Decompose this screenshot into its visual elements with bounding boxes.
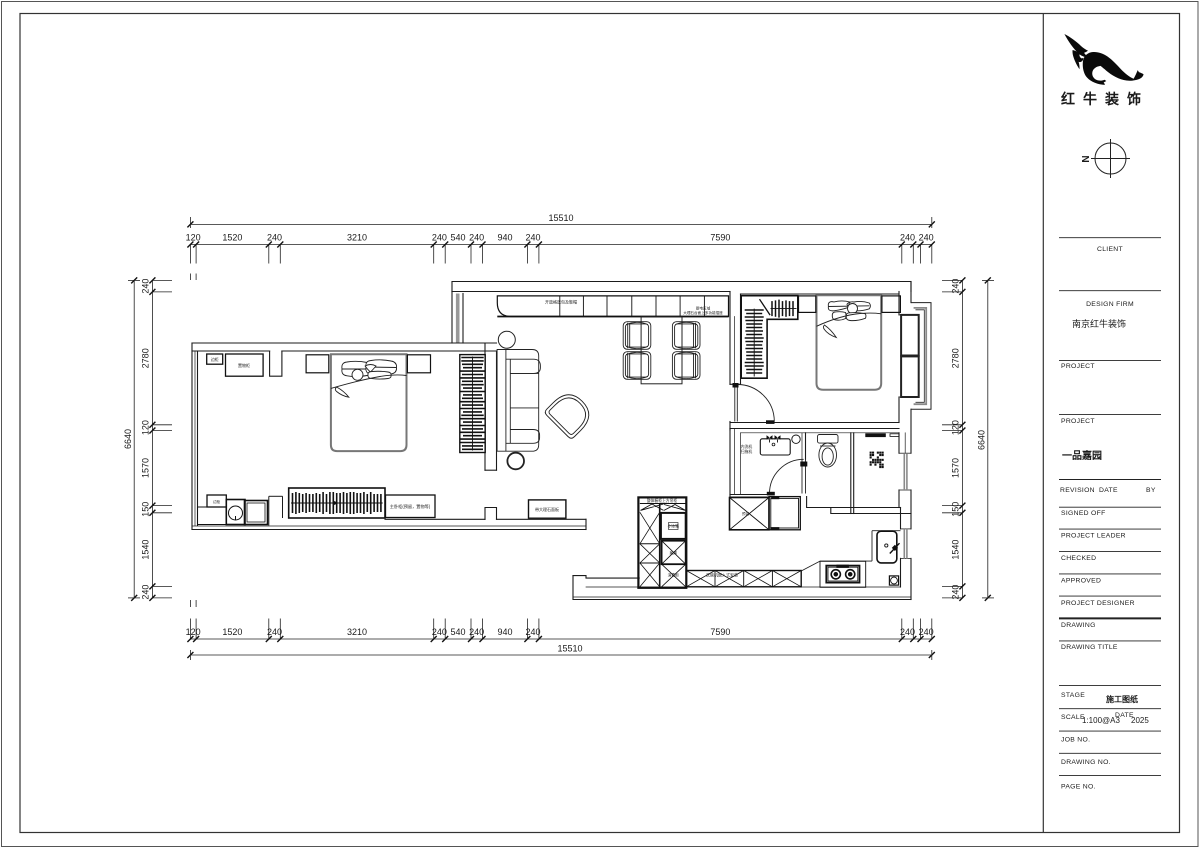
svg-text:边柜: 边柜 [211,356,219,362]
svg-text:240: 240 [900,627,915,637]
svg-text:1570: 1570 [950,458,960,478]
svg-text:2025: 2025 [1131,716,1149,725]
svg-text:一品嘉园: 一品嘉园 [1062,449,1102,462]
svg-text:240: 240 [267,233,282,243]
svg-text:边柜: 边柜 [213,499,220,504]
svg-text:540: 540 [450,627,465,637]
svg-text:120: 120 [950,420,960,435]
svg-text:15510: 15510 [548,213,573,223]
svg-text:预留: 预留 [742,511,750,516]
svg-text:240: 240 [140,279,150,294]
svg-text:120: 120 [140,420,150,435]
svg-text:蒸烤: 蒸烤 [670,551,678,556]
svg-text:整体橱柜上方吊柜: 整体橱柜上方吊柜 [647,498,678,503]
svg-text:大理石台面上多功能插座: 大理石台面上多功能插座 [683,310,723,315]
svg-text:带大理石面板: 带大理石面板 [535,506,559,512]
svg-text:150: 150 [950,502,960,517]
svg-text:N: N [1081,155,1092,162]
svg-text:240: 240 [267,627,282,637]
svg-text:240: 240 [469,233,484,243]
svg-text:240: 240 [525,627,540,637]
svg-text:1540: 1540 [950,540,960,560]
svg-text:240: 240 [432,627,447,637]
svg-text:SIGNED OFF: SIGNED OFF [1061,510,1106,517]
svg-text:DESIGN FIRM: DESIGN FIRM [1086,301,1134,308]
svg-text:3210: 3210 [347,233,367,243]
svg-text:240: 240 [919,233,934,243]
svg-text:洗碗机嵌入式安装: 洗碗机嵌入式安装 [706,572,738,578]
svg-text:120: 120 [186,233,201,243]
svg-text:150: 150 [140,502,150,517]
svg-text:7590: 7590 [710,233,730,243]
svg-text:南京红牛装饰: 南京红牛装饰 [1072,318,1126,329]
svg-text:7590: 7590 [710,627,730,637]
svg-text:3210: 3210 [347,627,367,637]
svg-text:240: 240 [525,233,540,243]
svg-text:120: 120 [186,627,201,637]
svg-text:厨电区域: 厨电区域 [696,306,711,311]
svg-text:施工图纸: 施工图纸 [1106,694,1138,704]
svg-text:DRAWING: DRAWING [1061,622,1096,629]
svg-text:2780: 2780 [140,348,150,368]
svg-text:2780: 2780 [950,348,960,368]
svg-text:940: 940 [497,627,512,637]
svg-text:DATE: DATE [1099,487,1118,494]
svg-text:主卧柜(预留，置物等): 主卧柜(预留，置物等) [390,503,431,510]
svg-text:240: 240 [900,233,915,243]
svg-text:PROJECT: PROJECT [1061,418,1095,425]
svg-text:240: 240 [469,627,484,637]
svg-text:消毒柜: 消毒柜 [668,573,680,578]
svg-text:置物柜: 置物柜 [238,362,250,368]
svg-text:开放格放包及鞋帽: 开放格放包及鞋帽 [545,299,577,305]
svg-text:PROJECT DESIGNER: PROJECT DESIGNER [1061,600,1135,607]
svg-text:APPROVED: APPROVED [1061,578,1101,585]
svg-text:1520: 1520 [222,627,242,637]
svg-text:240: 240 [950,585,960,600]
svg-text:STAGE: STAGE [1061,692,1085,699]
svg-text:PROJECT: PROJECT [1061,363,1095,370]
svg-text:1570: 1570 [140,458,150,478]
svg-text:DRAWING NO.: DRAWING NO. [1061,759,1111,766]
svg-text:内洗机: 内洗机 [741,444,753,449]
svg-text:540: 540 [450,233,465,243]
svg-text:REVISION: REVISION [1060,487,1095,494]
svg-text:6640: 6640 [976,430,986,450]
svg-text:PROJECT LEADER: PROJECT LEADER [1061,533,1126,540]
svg-text:1520: 1520 [222,233,242,243]
svg-text:CHECKED: CHECKED [1061,555,1096,562]
svg-text:240: 240 [919,627,934,637]
svg-text:240: 240 [950,279,960,294]
svg-text:240: 240 [140,585,150,600]
svg-text:JOB NO.: JOB NO. [1061,737,1090,744]
svg-text:CLIENT: CLIENT [1097,246,1123,253]
svg-text:扫拖机: 扫拖机 [741,449,753,454]
svg-text:1540: 1540 [140,540,150,560]
svg-text:BY: BY [1146,487,1156,494]
svg-text:240: 240 [432,233,447,243]
svg-text:PAGE NO.: PAGE NO. [1061,784,1096,791]
svg-text:红牛装饰: 红牛装饰 [1061,91,1149,107]
svg-text:15510: 15510 [557,644,582,654]
svg-text:DRAWING TITLE: DRAWING TITLE [1061,644,1118,651]
svg-text:6640: 6640 [123,429,133,449]
svg-text:小冰箱: 小冰箱 [668,524,680,529]
svg-text:940: 940 [497,233,512,243]
